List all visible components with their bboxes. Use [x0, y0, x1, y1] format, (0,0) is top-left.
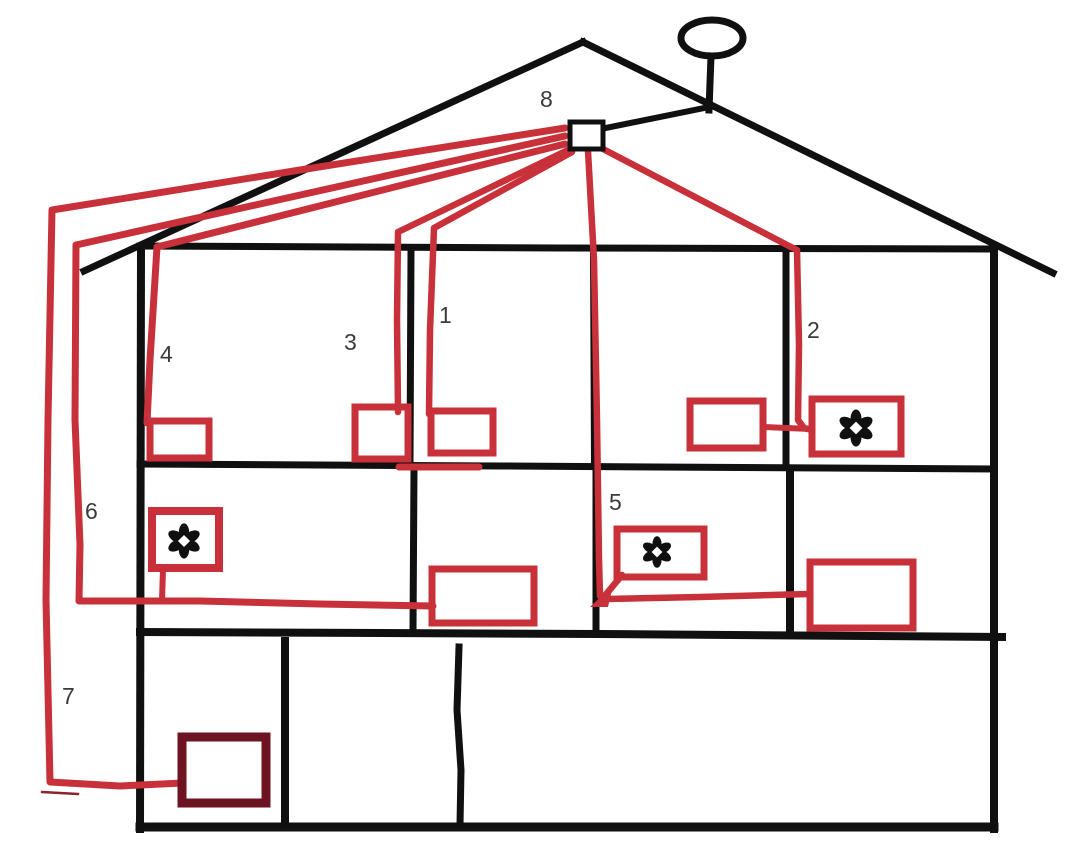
splitter-outlet-mid-right: [617, 529, 704, 577]
cable-7-label: 7: [62, 683, 75, 709]
splitter-outlet-mid-left: [152, 511, 219, 568]
house-cabling-sketch: 8 1 2 3 4 5 6 7: [0, 0, 1071, 846]
outlet-top-right-plain: [690, 401, 763, 448]
upper-floor-line: [140, 464, 994, 469]
cable-2-line: [603, 149, 812, 430]
antenna-dish-ellipse: [681, 20, 743, 56]
outlet-top-middle: [431, 411, 493, 453]
cable-7-smudge: [42, 792, 78, 794]
outlet-mid-far-right: [810, 562, 913, 628]
outlet-top-left-a: [150, 421, 209, 458]
cable-3-line: [397, 150, 568, 412]
ground-level-wall-2: [457, 647, 461, 825]
left-wall: [140, 247, 141, 829]
cable-5-label: 5: [609, 489, 622, 515]
middle-floor-line: [140, 632, 1002, 637]
cable-6-label: 6: [85, 498, 98, 524]
cable-7-line: [46, 128, 565, 786]
antenna-mast-line: [709, 56, 711, 110]
cable-2-label: 2: [807, 317, 820, 343]
splitter-icon: [837, 410, 875, 447]
splitter-icon: [166, 523, 202, 558]
dark-outlet-ground-floor: [182, 737, 266, 803]
distribution-point-label: 8: [540, 86, 553, 112]
outlet-top-left-b: [355, 407, 408, 459]
sketch-svg: 8 1 2 3 4 5 6 7: [0, 0, 1071, 846]
outlet-mid-center: [432, 569, 534, 623]
cable-5-right-run-line: [606, 594, 808, 599]
cable-4-label: 4: [160, 341, 173, 367]
cable-3-label: 3: [344, 329, 357, 355]
ceiling-line: [140, 246, 994, 249]
cable-2-outlet-link-line: [764, 427, 810, 429]
antenna-feed-line: [601, 107, 709, 129]
distribution-box: [570, 122, 603, 149]
cable-1-label: 1: [439, 302, 452, 328]
cable-6-splitter-tap-line: [162, 569, 163, 601]
cable-1-line: [429, 152, 572, 414]
splitter-outlet-top-right: [812, 399, 901, 454]
splitter-icon: [641, 536, 673, 567]
roof-right-line: [583, 42, 1053, 273]
